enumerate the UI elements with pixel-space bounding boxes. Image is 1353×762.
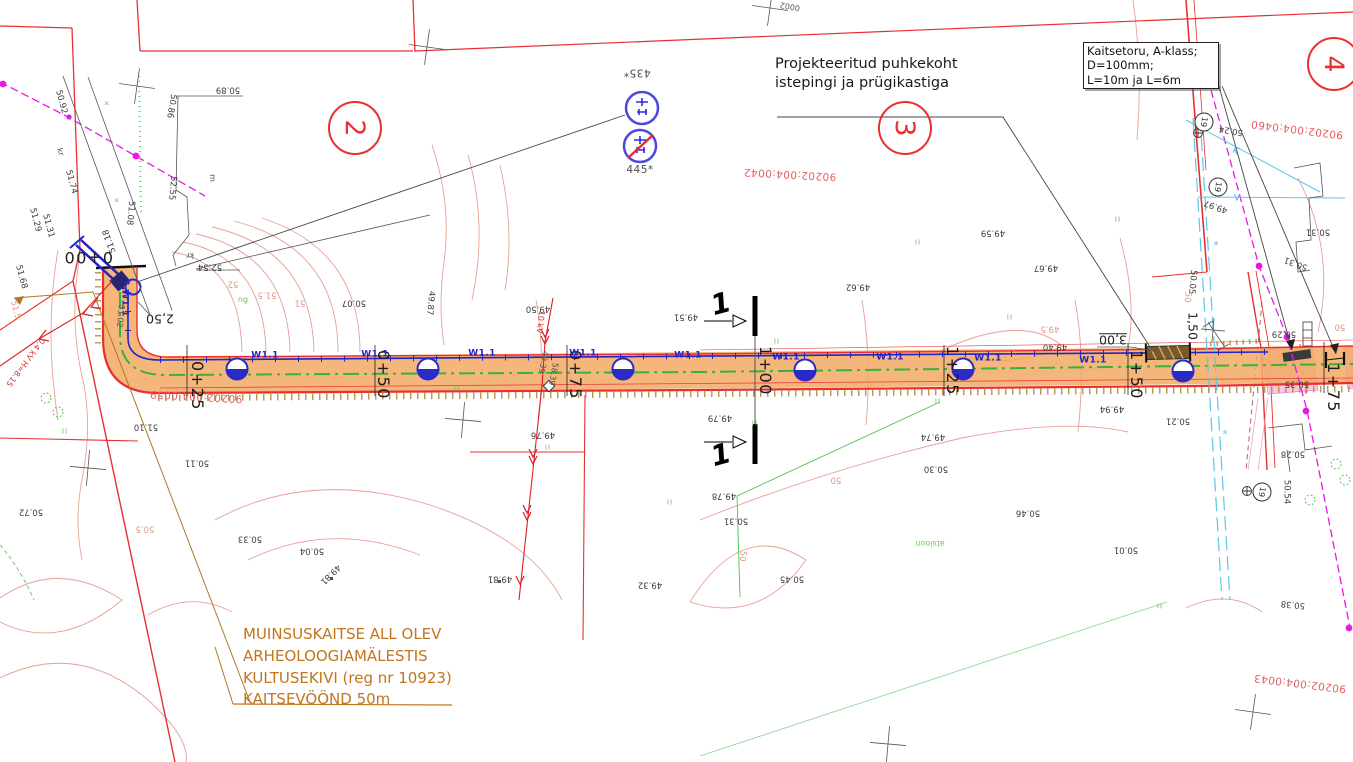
elevation-label: 50.35 xyxy=(1285,379,1309,388)
sheet-number-balloon: 2 xyxy=(328,101,382,155)
station-label: 1+50 xyxy=(1128,350,1144,400)
heritage-line2: ARHEOLOOGIAMÄLESTIS xyxy=(243,646,452,668)
contour-value-label: 49.5 xyxy=(1041,324,1060,333)
contour-value-label: 50 xyxy=(1182,291,1191,303)
heritage-line3: KULTUSEKIVI (reg nr 10923) xyxy=(243,668,452,690)
pipeline-w11-label: W1.1 xyxy=(251,352,278,361)
pipeline-w11-label: W1.1 xyxy=(974,355,1001,364)
sign-leader xyxy=(137,115,625,282)
vegetation-mark: II xyxy=(1007,315,1013,322)
elevation-label: 49.51 xyxy=(674,312,698,321)
section-arrow-bottom xyxy=(733,436,746,448)
powerline-label: 10 kV xyxy=(535,310,546,334)
vegetation-mark: II xyxy=(545,445,551,452)
road-inner-edge xyxy=(137,268,1353,357)
survey-lines xyxy=(63,76,1332,472)
traffic-sign-number-label: 445* xyxy=(626,165,653,176)
green-annotation: atsioon xyxy=(915,539,944,547)
dimension-label: 2,50 xyxy=(146,312,174,325)
misc-label: kr xyxy=(186,251,194,259)
vegetation-mark: × xyxy=(114,198,121,205)
elevation-label: 49.62 xyxy=(846,282,870,291)
dimension-label: 1,50 xyxy=(1186,312,1199,340)
contour-value-label: 52 xyxy=(228,279,239,288)
pipeline-w11-label: W1.1 xyxy=(1079,357,1106,366)
elevation-label: 50.31 xyxy=(724,516,748,525)
elevation-label: 50.46 xyxy=(1016,508,1040,517)
elevation-label: 49.40 xyxy=(1043,342,1067,351)
pipeline-w11-label: W1.1 xyxy=(772,354,799,363)
elevation-label: 52.55 xyxy=(167,176,178,201)
traffic-sign-symbols xyxy=(624,92,658,162)
vegetation-mark: II xyxy=(454,387,460,394)
rest-area-note-line1: Projekteeritud puhkekoht xyxy=(775,55,958,74)
elevation-label: 50.72 xyxy=(19,507,43,516)
elevation-label: 49.79 xyxy=(708,413,732,422)
manhole xyxy=(418,359,439,380)
vegetation-mark: II xyxy=(62,429,68,436)
manhole xyxy=(1173,361,1194,382)
elevation-label: 49.81 xyxy=(488,574,512,583)
station-label: 0+25 xyxy=(189,361,205,411)
elevation-label: 49.76 xyxy=(531,430,555,439)
elevation-label: 49.94 xyxy=(1100,404,1124,413)
elevation-label: 49.78 xyxy=(712,491,736,500)
casing-note-line3: L=10m ja L=6m xyxy=(1087,73,1215,87)
manhole xyxy=(613,359,634,380)
elevation-label: 50.11 xyxy=(185,458,209,467)
misc-label: m xyxy=(208,174,216,182)
station-label: 1+75 xyxy=(1325,363,1341,413)
elevation-label: 50.54 xyxy=(1282,480,1291,504)
contour-value-label: 51.5 xyxy=(258,290,277,299)
contour-value-label: 51 xyxy=(295,298,306,307)
green-annotation: ng xyxy=(238,296,248,304)
traffic-sign-number-label: 435* xyxy=(623,67,650,78)
rest-area-note-line2: istepingi ja prügikastiga xyxy=(775,74,958,93)
vegetation-mark: II xyxy=(915,240,921,247)
elevation-label: 51.08 xyxy=(125,201,136,226)
site-plan: 50.8950.8650.9251.7451.2951.3151.6851.18… xyxy=(0,0,1353,762)
elevation-label: 50.31 xyxy=(1306,227,1330,236)
pipeline-w11-label: W1.1 xyxy=(569,350,596,359)
manhole xyxy=(227,359,248,380)
vegetation-mark: II xyxy=(1157,604,1163,611)
elevation-label: 52.54 xyxy=(198,262,222,271)
elevation-label: 50.29 xyxy=(1272,329,1296,338)
heritage-protection-note: MUINSUSKAITSE ALL OLEV ARHEOLOOGIAMÄLEST… xyxy=(243,624,452,711)
elevation-label: 50.01 xyxy=(1114,545,1138,554)
heritage-line4: KAITSEVÖÖND 50m xyxy=(243,689,452,711)
elevation-label: 49.67 xyxy=(1034,263,1058,272)
pipeline-w11-label: W1.1 xyxy=(468,350,495,359)
sign-435-circle xyxy=(626,92,658,124)
green-features xyxy=(0,76,1350,756)
elevation-label: 50.38 xyxy=(1281,599,1306,610)
elevation-label: 51.10 xyxy=(134,422,158,431)
dimension-label: 3,00 xyxy=(1099,333,1127,346)
rest-area-leader xyxy=(777,117,1152,350)
contour-value-label: 50.5 xyxy=(136,524,155,533)
pipeline-w11-label: W1.1 xyxy=(876,354,903,363)
misc-label: 51.02 xyxy=(115,304,125,328)
elevation-label: 50.30 xyxy=(924,464,948,473)
elevation-label: 50.89 xyxy=(216,85,240,94)
vegetation-mark: II xyxy=(935,399,941,406)
elevation-label: 50.28 xyxy=(1281,449,1305,458)
section-arrow-top xyxy=(733,315,746,327)
vegetation-mark: II xyxy=(752,421,758,428)
sheet-number-balloon: 4 xyxy=(1307,37,1353,91)
elevation-label: 49.32 xyxy=(638,580,662,589)
vegetation-mark: II xyxy=(667,500,673,507)
vegetation-mark: II xyxy=(774,339,780,346)
casing-note-line1: Kaitsetoru, A-klass; xyxy=(1087,44,1215,58)
elevation-label: 49.87 xyxy=(425,291,436,316)
station-label: 0+00 xyxy=(63,249,113,265)
vegetation-mark: × xyxy=(104,101,111,108)
manhole xyxy=(795,360,816,381)
station-label: 1+25 xyxy=(944,346,960,396)
pipeline-w11-label: W1.1 xyxy=(361,351,388,360)
rest-area-note: Projekteeritud puhkekoht istepingi ja pr… xyxy=(775,55,958,93)
contour-value-label: 50 xyxy=(737,550,746,562)
pipeline-w11-label: W1.1 xyxy=(674,352,701,361)
elevation-label: 49.74 xyxy=(921,432,945,441)
casing-pipe-note-box: Kaitsetoru, A-klass; D=100mm; L=10m ja L… xyxy=(1083,42,1219,89)
contour-value-label: 50 xyxy=(1335,322,1346,331)
casing-note-line2: D=100mm; xyxy=(1087,58,1215,72)
elevation-label: 49.59 xyxy=(981,228,1005,237)
station-label: 1+00 xyxy=(757,346,773,396)
elevation-label: 50.33 xyxy=(238,534,262,543)
sheet-number-balloon: 3 xyxy=(878,101,932,155)
utility-letter-label: V xyxy=(1234,195,1240,204)
elevation-label: 50.07 xyxy=(342,298,366,307)
elevation-label: 50.45 xyxy=(780,574,804,583)
contour-value-label: 50 xyxy=(831,475,842,484)
elevation-label: 50.04 xyxy=(300,546,324,555)
leader-lines xyxy=(137,72,1339,354)
elevation-label: 50.21 xyxy=(1166,416,1190,425)
heritage-line1: MUINSUSKAITSE ALL OLEV xyxy=(243,624,452,646)
vegetation-mark: II xyxy=(1115,217,1121,224)
